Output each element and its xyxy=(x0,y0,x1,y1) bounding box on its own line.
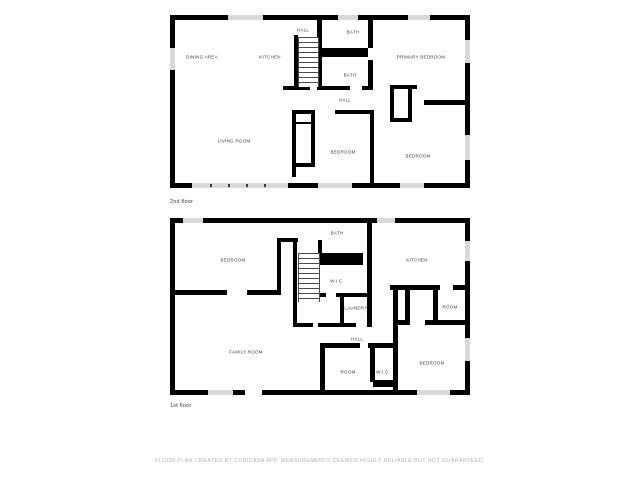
room-label-bath-lower: BATH xyxy=(344,73,357,78)
room-label-bath: BATH xyxy=(331,231,344,236)
wall xyxy=(340,297,344,323)
wall xyxy=(335,110,374,114)
wall xyxy=(320,348,325,390)
wall xyxy=(367,223,372,327)
window xyxy=(417,390,450,395)
wall xyxy=(340,323,356,327)
wall xyxy=(362,86,373,90)
room-label-wic-upper: W.I.C. xyxy=(330,279,344,284)
wall xyxy=(292,163,315,167)
window xyxy=(192,183,288,188)
wall xyxy=(368,20,373,48)
window xyxy=(228,15,263,20)
stairs xyxy=(298,253,320,302)
window-mullion xyxy=(246,184,248,187)
wall xyxy=(277,238,281,295)
window xyxy=(408,15,430,20)
floor-plan-1st-floor: BEDROOM BATH KITCHEN W.I.C. LAUNDRY ROOM… xyxy=(170,218,470,395)
wall xyxy=(170,15,175,188)
room-label-room-bottom: ROOM xyxy=(341,370,356,375)
room-label-primary-bedroom: PRIMARY BEDROOM xyxy=(397,55,446,60)
stairs xyxy=(298,37,319,87)
floor-plan-page: DINING AREA KITCHEN HALL BATH BATH PRIMA… xyxy=(0,0,640,480)
room-label-hall-middle: HALL xyxy=(339,98,351,103)
window xyxy=(338,15,358,20)
wall xyxy=(390,85,394,122)
window xyxy=(377,218,395,223)
room-label-dining-area: DINING AREA xyxy=(186,55,218,60)
room-label-family-room: FAMILY ROOM xyxy=(229,350,263,355)
window xyxy=(318,183,352,188)
window xyxy=(465,135,470,160)
closet-shelf xyxy=(296,122,311,124)
wall xyxy=(425,320,465,325)
room-label-bath-top: BATH xyxy=(347,30,360,35)
wall xyxy=(311,110,315,167)
room-label-living-room: LIVING ROOM xyxy=(218,139,251,144)
wall xyxy=(293,242,297,326)
room-label-bedroom-right: BEDROOM xyxy=(405,154,430,159)
room-label-wic-bottom: W.I.C. xyxy=(376,370,390,375)
window xyxy=(400,183,424,188)
bath-vanity xyxy=(318,253,363,265)
wall xyxy=(424,100,465,105)
wall xyxy=(390,118,412,122)
room-label-hall: HALL xyxy=(351,337,363,342)
wall xyxy=(170,218,175,395)
window xyxy=(465,338,470,361)
window xyxy=(465,40,470,63)
wall xyxy=(453,285,465,290)
room-label-bedroom-lower: BEDROOM xyxy=(419,361,444,366)
window-mullion xyxy=(210,184,212,187)
wall xyxy=(370,114,374,183)
floor-plan-2nd-floor: DINING AREA KITCHEN HALL BATH BATH PRIMA… xyxy=(170,15,470,188)
window-mullion xyxy=(264,184,266,187)
room-label-kitchen: KITCHEN xyxy=(406,258,428,263)
disclaimer-text: FLOOR PLAN CREATED BY CUBICASA APP. MEAS… xyxy=(0,458,640,464)
floor-label-1st: 1st floor xyxy=(170,403,191,409)
wall xyxy=(170,218,470,223)
window xyxy=(183,218,203,223)
window xyxy=(208,390,233,395)
wall xyxy=(322,86,350,90)
room-label-room-right: ROOM xyxy=(443,305,458,310)
wall xyxy=(390,85,417,89)
wic-cabinet xyxy=(373,380,395,387)
wall xyxy=(318,323,340,327)
room-label-hall-upper: HALL xyxy=(297,28,309,33)
room-label-kitchen: KITCHEN xyxy=(259,55,281,60)
wall xyxy=(433,290,438,320)
wall xyxy=(175,290,227,295)
room-label-bedroom-upper: BEDROOM xyxy=(220,258,245,263)
window-mullion xyxy=(228,184,230,187)
wall xyxy=(320,343,360,348)
wall xyxy=(293,323,313,327)
bath-vanity xyxy=(322,48,368,57)
door-opening xyxy=(245,390,262,395)
room-label-bedroom-center: BEDROOM xyxy=(330,150,355,155)
window xyxy=(170,48,175,70)
window xyxy=(465,241,470,261)
wall xyxy=(247,290,278,295)
floor-label-2nd: 2nd floor xyxy=(170,199,193,205)
wall xyxy=(370,348,375,382)
room-label-laundry: LAUNDRY xyxy=(344,306,367,311)
